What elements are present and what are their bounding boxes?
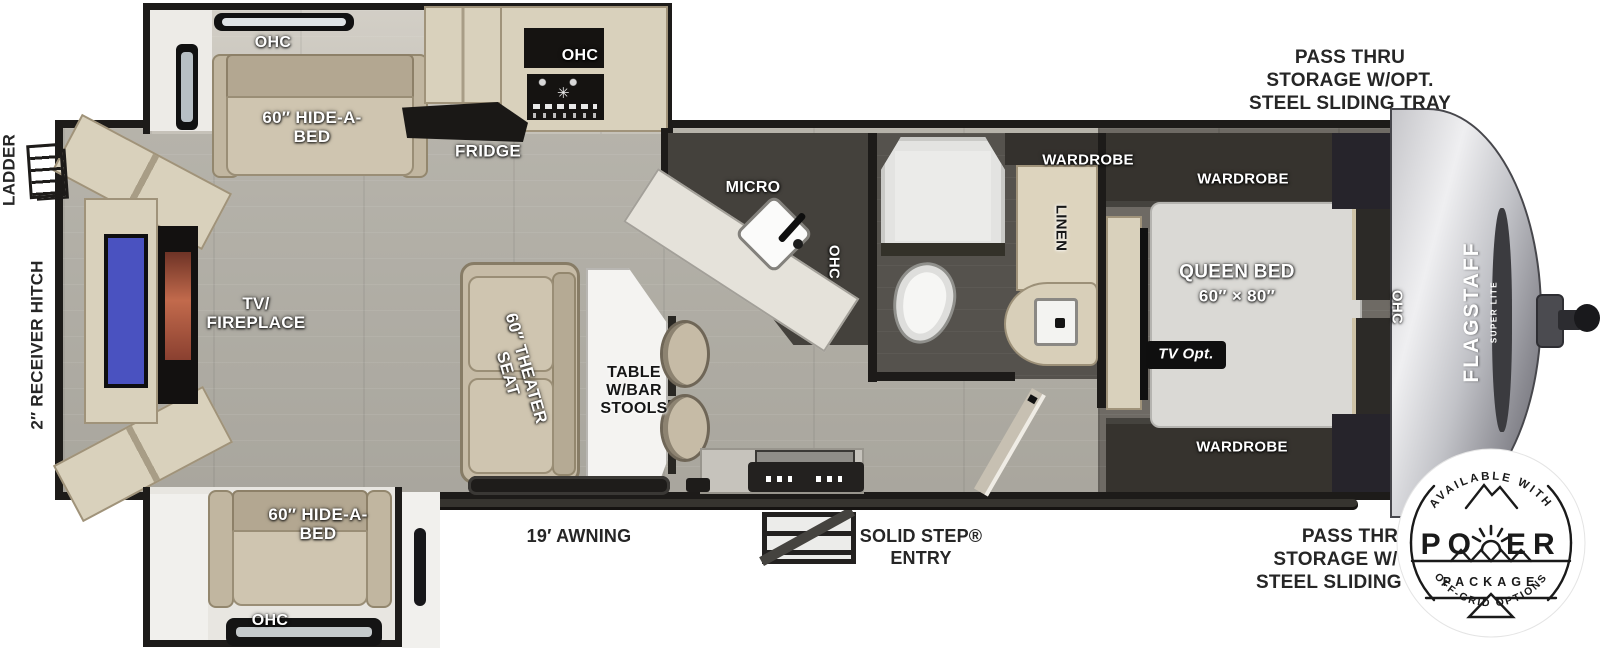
brand-super-lite: SUPER LITE xyxy=(1489,281,1498,343)
stove-burner-row xyxy=(533,113,597,118)
theater-seat-back xyxy=(552,272,576,476)
ladder-label: LADDER xyxy=(0,134,20,206)
wardrobe-label-hall: WARDROBE xyxy=(1042,153,1134,170)
step-tread-dots xyxy=(816,476,842,482)
ohc-label-slide-bottom: OHC xyxy=(252,612,288,630)
slide-top-window-glass xyxy=(222,18,346,26)
bedroom-dresser xyxy=(1106,216,1142,410)
fridge-label: FRIDGE xyxy=(455,141,521,160)
micro-label: MICRO xyxy=(726,179,781,197)
bath-faucet xyxy=(1055,318,1065,328)
bedroom-wall xyxy=(1097,133,1106,408)
ohc-label-stove: OHC xyxy=(562,47,598,65)
queen-bed xyxy=(1150,202,1362,428)
stove: ✳ xyxy=(527,74,604,120)
door-handle xyxy=(1027,394,1037,404)
sofa-backrest xyxy=(226,54,414,98)
slide-top-side-window-glass xyxy=(181,52,193,122)
bath-left-wall xyxy=(868,133,877,382)
fireplace-glow xyxy=(165,252,191,360)
stove-grate xyxy=(533,104,597,109)
bath-bottom-wall xyxy=(868,372,1015,381)
tv-opt-label: TV Opt. xyxy=(1158,347,1213,364)
solid-step-label: SOLID STEP® ENTRY xyxy=(860,526,982,570)
receiver-hitch-label: 2″ RECEIVER HITCH xyxy=(28,260,49,429)
step-tread-dots xyxy=(766,476,792,482)
queen-bed-label: QUEEN BED xyxy=(1179,261,1295,282)
ohc-label-slide-top: OHC xyxy=(255,34,291,52)
ohc-label-bedroom: OHC xyxy=(1388,290,1405,324)
awning-rail xyxy=(388,499,1358,510)
hide-a-bed-bottom-label: 60″ HIDE-A- BED xyxy=(268,505,367,543)
linen-label: LINEN xyxy=(1052,205,1069,252)
sofa-armrest xyxy=(208,490,234,608)
kitchen-faucet-base xyxy=(793,239,803,249)
sofa-armrest xyxy=(366,490,392,608)
bedroom-tv xyxy=(1140,228,1148,400)
wardrobe-label-top: WARDROBE xyxy=(1197,172,1289,189)
hitch-jack-knob xyxy=(1574,304,1600,332)
slide-bottom-end-panel xyxy=(150,494,208,640)
ladder-icon xyxy=(26,143,66,199)
burner-icon: ✳ xyxy=(557,86,570,101)
slide-bottom-right-window xyxy=(414,528,426,606)
pantry-cabinet xyxy=(424,6,502,104)
wardrobe-label-bottom: WARDROBE xyxy=(1196,440,1288,457)
queen-bed-size-label: 60″ × 80″ xyxy=(1199,286,1275,305)
badge-power-er: ER xyxy=(1506,528,1562,561)
table-label: TABLE W/BAR STOOLS xyxy=(600,364,667,418)
tv-fireplace-label: TV/ FIREPLACE xyxy=(206,294,305,332)
ohc-label-kitchen: OHC xyxy=(825,245,842,279)
tv-screen xyxy=(104,234,148,388)
awning-label: 19′ AWNING xyxy=(527,526,632,548)
power-package-badge: AVAILABLE WITH PO ER PACKAGE OFF-GRID OP… xyxy=(1396,448,1586,638)
brand-flagstaff: FLAGSTAFF xyxy=(1460,241,1484,382)
shower-ledge xyxy=(881,243,1005,256)
hide-a-bed-top-label: 60″ HIDE-A- BED xyxy=(262,108,361,146)
floorplan-diagram: ✳ xyxy=(0,0,1600,661)
pass-thru-label-top: PASS THRU STORAGE W/OPT. STEEL SLIDING T… xyxy=(1170,46,1530,116)
step-unit xyxy=(748,462,864,492)
badge-power-po: PO xyxy=(1421,528,1478,561)
shower xyxy=(881,137,1005,255)
griddle-bracket xyxy=(686,478,710,492)
exterior-griddle xyxy=(468,476,670,495)
